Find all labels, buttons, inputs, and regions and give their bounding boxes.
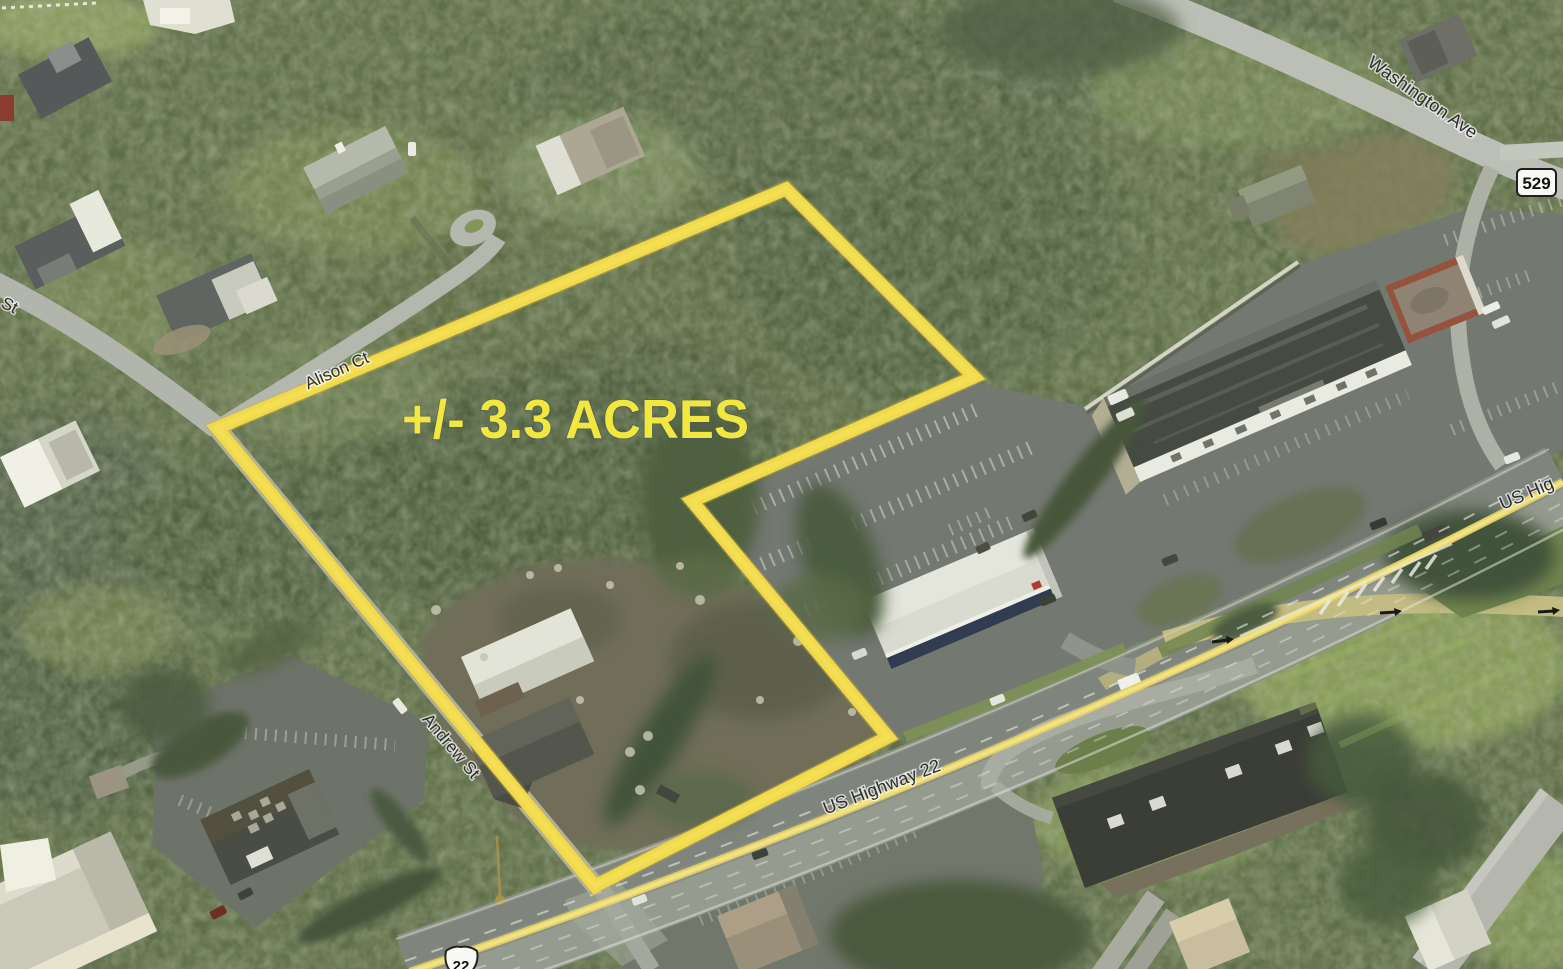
svg-text:22: 22 xyxy=(453,958,470,969)
svg-text:+/- 3.3 ACRES: +/- 3.3 ACRES xyxy=(402,388,749,450)
svg-text:529: 529 xyxy=(1522,174,1550,193)
